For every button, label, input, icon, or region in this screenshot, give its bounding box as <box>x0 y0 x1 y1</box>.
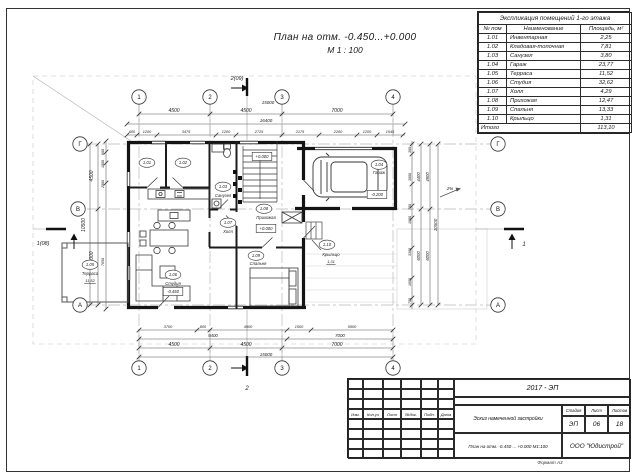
table-cell: 1.06 <box>479 79 507 88</box>
table-cell: 7,81 <box>581 43 632 52</box>
table-title: Экспликация помещений 1-го этажа <box>479 13 632 25</box>
rev-cell <box>348 439 363 449</box>
table-row: 1.06Студия32,62 <box>479 79 632 88</box>
dim-text: 2 <box>244 386 249 392</box>
dim-text: Студия <box>165 281 181 286</box>
table-cell: 13,33 <box>581 106 632 115</box>
table-cell: 1.08 <box>479 97 507 106</box>
table-header-row: № помНаименованиеПлощадь, м² <box>479 25 632 34</box>
rev-cell <box>383 389 401 399</box>
dim-text: 4500 <box>89 170 95 181</box>
table-cell: 1.09 <box>479 106 507 115</box>
rev-header: №док. <box>401 409 421 419</box>
rev-cell <box>438 419 454 429</box>
table-cell: Санузел <box>507 52 581 61</box>
dim-text: 9400 <box>208 333 218 338</box>
level-mark: +0.000 <box>260 226 274 231</box>
annotation-layer: 12341234ГВАГВА2(09)150004500450070001640… <box>37 76 526 392</box>
rev-cell <box>401 399 421 409</box>
dim-text: 6000 <box>425 251 430 261</box>
axis-label: В <box>76 207 80 213</box>
rev-cell <box>438 449 454 459</box>
axis-label: В <box>496 207 500 213</box>
rev-cell <box>401 419 421 429</box>
sheet-label: Лист <box>585 405 608 416</box>
sheets-total: 18 <box>608 416 631 433</box>
rev-header: Кол.уч <box>363 409 383 419</box>
room-explication-table: Экспликация помещений 1-го этажа № помНа… <box>477 11 630 134</box>
dim-text: 2% <box>446 186 454 191</box>
room-tag: 1.01 <box>143 160 151 165</box>
room-tag: 1.03 <box>219 184 228 189</box>
dim-text: 10500 <box>433 218 438 231</box>
title-block: Изм.Кол.учЛист№док.Подп.Дата 2017 - ЭП Э… <box>347 378 630 458</box>
table-row: 1.02Кладовая-топочная7,81 <box>479 43 632 52</box>
table-cell: 3,80 <box>581 52 632 61</box>
table-row: 1.04Гараж23,77 <box>479 61 632 70</box>
rev-header: Изм. <box>348 409 363 419</box>
dim-text: 10500 <box>81 218 87 232</box>
dim-text: 16400 <box>260 118 273 123</box>
doc-title: Эскиз намеченной застройки <box>454 405 562 433</box>
rev-header: Дата <box>438 409 454 419</box>
dim-text: 300 <box>408 147 412 153</box>
room-tag: 1.06 <box>169 272 178 277</box>
rev-cell <box>383 419 401 429</box>
dim-text: 600 <box>101 149 105 155</box>
table-cell: 4,29 <box>581 88 632 97</box>
dim-text: Спальня <box>250 261 267 266</box>
table-cell: 1.04 <box>479 61 507 70</box>
rev-cell <box>348 379 363 389</box>
rev-cell <box>348 399 363 409</box>
rev-cell <box>401 389 421 399</box>
table-cell: 1,31 <box>581 115 632 124</box>
rev-cell <box>383 429 401 439</box>
rev-cell <box>363 439 383 449</box>
dim-text: 1545 <box>386 130 395 134</box>
dim-text: 4500 <box>168 342 179 348</box>
rev-cell <box>348 419 363 429</box>
rev-cell <box>363 399 383 409</box>
rev-cell <box>438 439 454 449</box>
rev-cell <box>438 379 454 389</box>
dim-text: 1(08) <box>37 241 50 247</box>
column-header: Наименование <box>507 25 581 34</box>
table-cell: Терраса <box>507 70 581 79</box>
table-cell: Холл <box>507 88 581 97</box>
dim-text: 15000 <box>260 352 273 357</box>
room-tag: 1.05 <box>86 262 95 267</box>
dim-text: 7650 <box>101 258 105 266</box>
dim-text: 4400 <box>416 172 421 182</box>
table-cell: 1.03 <box>479 52 507 61</box>
dim-text: 1000 <box>408 216 412 224</box>
room-tag: 1.07 <box>224 220 233 225</box>
table-cell: 1.05 <box>479 70 507 79</box>
company-name: ООО "Юдистрой" <box>562 433 631 459</box>
stage-value: ЭП <box>562 416 585 433</box>
room-tag: 1.09 <box>252 253 261 258</box>
table-cell: Спальня <box>507 106 581 115</box>
rev-header: Подп. <box>421 409 438 419</box>
rev-cell <box>363 419 383 429</box>
table-cell: 1.10 <box>479 115 507 124</box>
dim-text: 3000 <box>408 173 412 181</box>
dim-text: 2175 <box>295 130 305 134</box>
level-mark: -0.200 <box>371 192 384 197</box>
table-cell: 32,62 <box>581 79 632 88</box>
dim-text: Санузел <box>215 193 232 198</box>
rev-cell <box>401 379 421 389</box>
table-row: 1.08Прихожая12,47 <box>479 97 632 106</box>
rev-cell <box>401 429 421 439</box>
table-cell: 23,77 <box>581 61 632 70</box>
dim-text: 4900 <box>425 172 430 182</box>
section-markers <box>46 78 524 376</box>
table-cell: Студия <box>507 79 581 88</box>
rev-cell <box>348 429 363 439</box>
rev-cell <box>348 449 363 459</box>
dim-text: 2725 <box>254 130 264 134</box>
rev-cell <box>383 379 401 389</box>
plan-scale: М 1 : 100 <box>235 45 455 55</box>
rev-cell <box>401 449 421 459</box>
table-cell: Кладовая-топочная <box>507 43 581 52</box>
table-total-row: Итого 113,10 <box>479 124 632 133</box>
table-cell: Прихожая <box>507 97 581 106</box>
dim-text: 15000 <box>262 100 275 105</box>
dim-text: 3475 <box>182 130 191 134</box>
column-header: № пом <box>479 25 507 34</box>
dim-text: Терраса <box>82 271 99 276</box>
dim-text: 1200 <box>363 130 372 134</box>
dim-text: 700 <box>408 204 412 210</box>
table-cell: 1.07 <box>479 88 507 97</box>
dim-text: 2000 <box>101 180 105 189</box>
dim-text: 3300 <box>408 248 412 256</box>
dim-text: 4900 <box>244 325 253 329</box>
rev-cell <box>421 449 438 459</box>
level-mark: +0.000 <box>256 154 270 159</box>
dim-text: Прихожая <box>256 215 276 220</box>
table-cell: Гараж <box>507 61 581 70</box>
plan-title: План на отм. -0.450...+0.000 <box>235 32 455 43</box>
table-cell: Инвентарная <box>507 34 581 43</box>
empty-strip <box>454 397 631 405</box>
dim-text: 800 <box>200 325 207 329</box>
table-row: 1.10Крыльцо1,31 <box>479 115 632 124</box>
total-value: 113,10 <box>581 124 632 133</box>
dim-text: 7000 <box>331 342 342 348</box>
dim-text: 7000 <box>335 333 345 338</box>
room-tag: 1.02 <box>179 160 188 165</box>
dim-text: 1,31 <box>327 259 335 264</box>
rev-cell <box>421 439 438 449</box>
dim-text: 2(09) <box>230 76 244 82</box>
table-row: 1.01Инвентарная2,25 <box>479 34 632 43</box>
dim-text: 600 <box>129 130 136 134</box>
rev-cell <box>438 389 454 399</box>
rev-cell <box>383 449 401 459</box>
stage-label: Стадия <box>562 405 585 416</box>
level-mark: -0.450 <box>167 289 180 294</box>
rev-cell <box>421 399 438 409</box>
table-cell: 12,47 <box>581 97 632 106</box>
stairs <box>243 141 277 202</box>
dim-text: 6000 <box>416 251 421 261</box>
sheet-number: 06 <box>585 416 608 433</box>
table-row: 1.07Холл4,29 <box>479 88 632 97</box>
rev-cell <box>421 379 438 389</box>
rev-cell <box>348 389 363 399</box>
rev-header: Лист <box>383 409 401 419</box>
axis-label: А <box>496 303 500 309</box>
table-cell: 2,25 <box>581 34 632 43</box>
rev-cell <box>421 389 438 399</box>
dim-text: 4500 <box>240 342 251 348</box>
table-cell: Крыльцо <box>507 115 581 124</box>
dim-text: 2260 <box>333 130 343 134</box>
dim-text: 7000 <box>331 108 342 114</box>
table-cell: 1.01 <box>479 34 507 43</box>
rev-cell <box>438 429 454 439</box>
rev-cell <box>363 429 383 439</box>
dim-text: Крыльцо <box>322 252 340 257</box>
dim-text: Холл <box>222 229 233 234</box>
dimension-lines <box>90 114 438 357</box>
dim-text: 1600 <box>408 278 412 286</box>
rev-cell <box>383 439 401 449</box>
dim-text: 3700 <box>164 325 173 329</box>
table-cell: 11,52 <box>581 70 632 79</box>
project-code: 2017 - ЭП <box>454 379 631 397</box>
dim-text: 1200 <box>222 130 231 134</box>
sheets-label: Листов <box>608 405 631 416</box>
room-tag: 1.10 <box>323 242 332 247</box>
table-row: 1.03Санузел3,80 <box>479 52 632 61</box>
table-row: 1.09Спальня13,33 <box>479 106 632 115</box>
rev-cell <box>421 429 438 439</box>
room-tag: 1.08 <box>260 206 269 211</box>
rev-cell <box>401 439 421 449</box>
table-cell: 1.02 <box>479 43 507 52</box>
dim-text: 1200 <box>143 130 152 134</box>
sheet-caption: План на отм. -0.450 ... +0.000 М1:100 <box>454 433 562 459</box>
plan-heading: План на отм. -0.450...+0.000 М 1 : 100 <box>235 32 455 55</box>
dim-text: 5500 <box>348 325 357 329</box>
dim-text: 1 <box>522 242 525 248</box>
dim-text: 11,52 <box>85 278 95 283</box>
format-note: Формат А3 <box>470 460 630 465</box>
axis-label: А <box>78 303 82 309</box>
dim-text: Гараж <box>373 170 386 175</box>
dim-text: 4500 <box>240 108 251 114</box>
room-tag: 1.04 <box>375 162 384 167</box>
rev-cell <box>421 419 438 429</box>
total-label: Итого <box>479 124 581 133</box>
dim-text: 4500 <box>168 108 179 114</box>
rev-cell <box>363 389 383 399</box>
dim-text: 1500 <box>295 325 304 329</box>
rev-cell <box>363 449 383 459</box>
rev-cell <box>363 379 383 389</box>
rev-cell <box>438 399 454 409</box>
table-row: 1.05Терраса11,52 <box>479 70 632 79</box>
rev-cell <box>383 399 401 409</box>
dim-text: 700 <box>408 298 412 304</box>
dim-text: 1000 <box>101 160 105 168</box>
column-header: Площадь, м² <box>581 25 632 34</box>
